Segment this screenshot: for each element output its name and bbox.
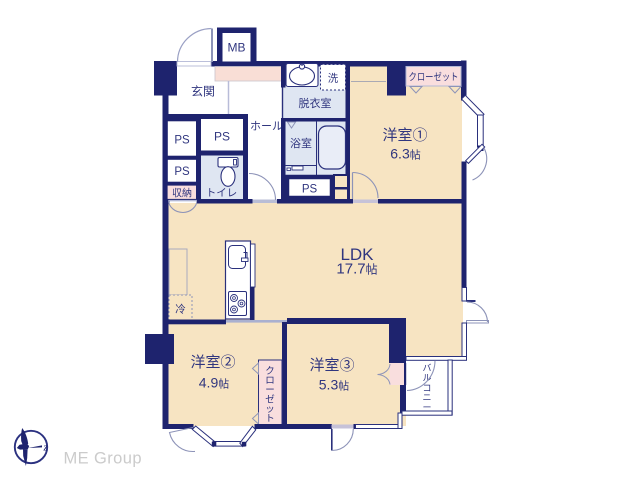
svg-text:玄関: 玄関 [191,84,215,99]
svg-text:浴室: 浴室 [290,136,312,150]
svg-text:冷: 冷 [175,303,186,316]
svg-text:PS: PS [174,166,190,178]
svg-text:収納: 収納 [172,187,192,200]
svg-text:洋室①: 洋室① [382,127,427,144]
svg-text:洋室②: 洋室② [190,354,235,371]
svg-text:ME Group: ME Group [64,450,142,468]
svg-text:PS: PS [174,135,190,147]
svg-text:洋室③: 洋室③ [309,357,354,374]
svg-text:17.7帖: 17.7帖 [336,261,377,278]
svg-text:ホール: ホール [250,120,283,133]
svg-text:洗: 洗 [328,73,339,85]
svg-text:トイレ: トイレ [206,187,238,199]
svg-text:クローゼット: クローゼット [409,72,459,84]
svg-text:バルコニー: バルコニー [422,363,431,413]
svg-text:脱衣室: 脱衣室 [299,96,332,110]
svg-text:PS: PS [214,130,230,144]
svg-text:MB: MB [228,41,246,55]
svg-text:z: z [43,442,49,454]
svg-text:クローゼット: クローゼット [265,366,275,425]
svg-text:PS: PS [302,184,318,196]
